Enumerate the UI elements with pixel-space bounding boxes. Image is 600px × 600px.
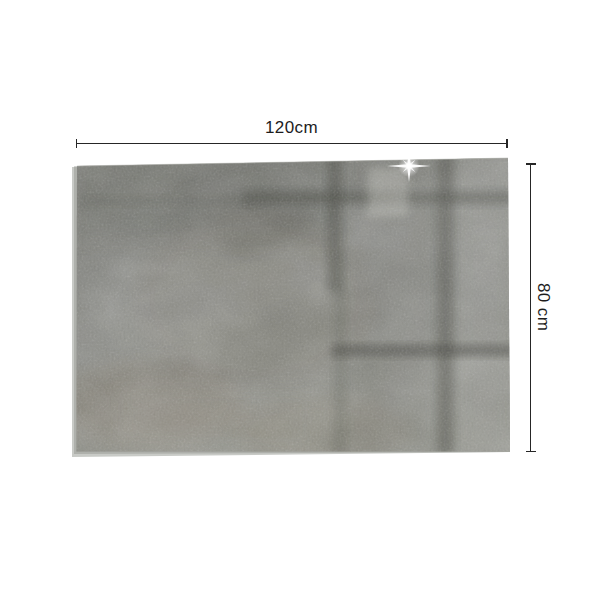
glass-panel-face xyxy=(37,149,550,465)
width-dimension-line xyxy=(76,143,507,145)
width-dimension-tick-left xyxy=(76,139,78,148)
product-dimension-image: 120cm 80 cm xyxy=(0,0,600,600)
height-dimension-label: 80 cm xyxy=(533,163,553,452)
width-dimension-label: 120cm xyxy=(76,118,507,138)
width-dimension-tick-right xyxy=(506,139,508,148)
glass-panel-image xyxy=(0,0,600,600)
height-dimension-line xyxy=(530,163,532,452)
